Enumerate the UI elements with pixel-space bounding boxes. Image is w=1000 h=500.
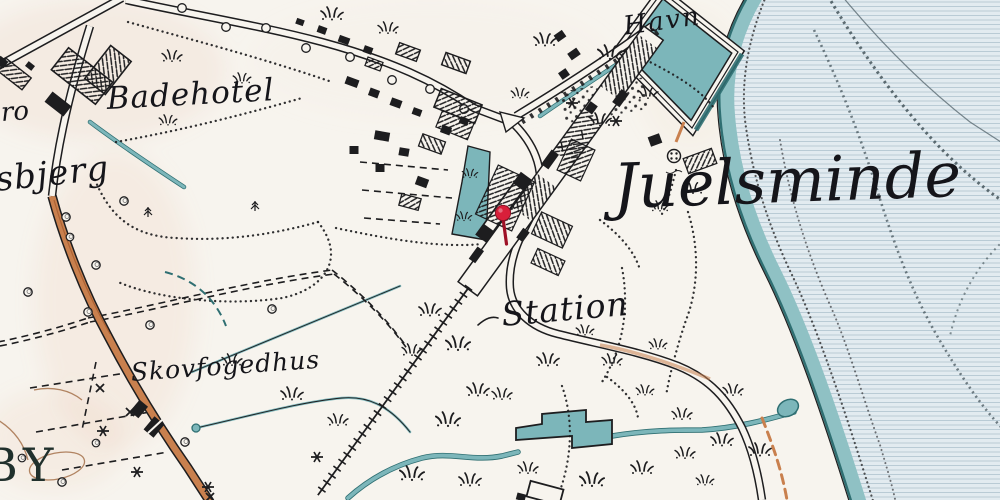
small-pond [192, 424, 200, 432]
map-viewport[interactable]: Juelsminde Havn Badehotel sbjerg ro Stat… [0, 0, 1000, 500]
map-canvas [0, 0, 1000, 500]
